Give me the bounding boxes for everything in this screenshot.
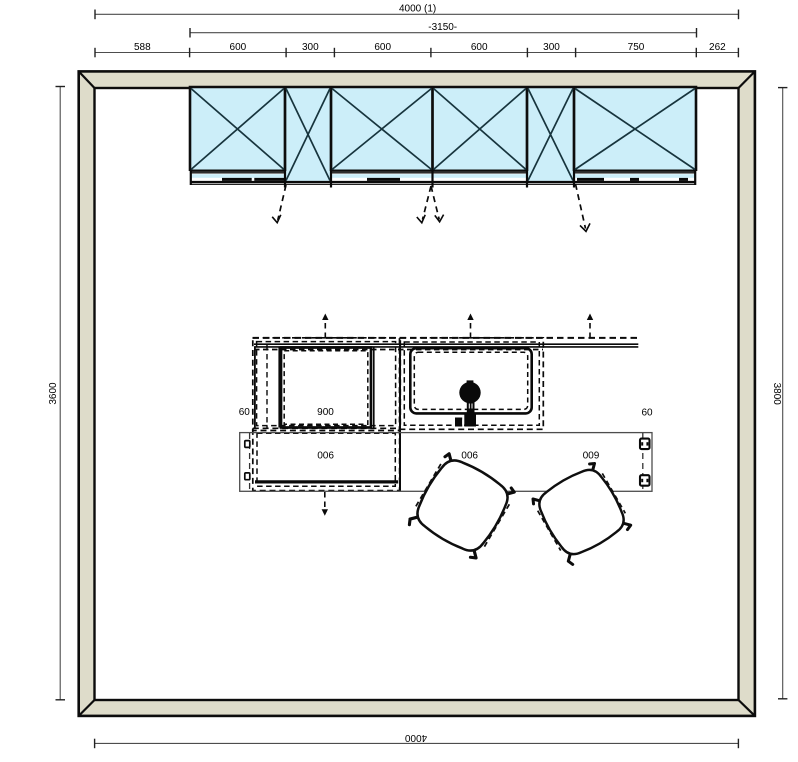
svg-text:262: 262 <box>709 42 726 53</box>
svg-text:600: 600 <box>471 42 488 53</box>
svg-text:300: 300 <box>543 42 560 53</box>
svg-text:60: 60 <box>641 408 653 419</box>
svg-text:3600: 3600 <box>48 382 59 405</box>
svg-text:900: 900 <box>317 407 334 418</box>
svg-text:4000 (1): 4000 (1) <box>399 3 436 14</box>
svg-text:900: 900 <box>461 448 478 459</box>
svg-text:3800: 3800 <box>771 383 782 406</box>
svg-text:4000: 4000 <box>404 732 427 743</box>
svg-text:588: 588 <box>134 42 151 53</box>
svg-text:600: 600 <box>230 42 247 53</box>
svg-text:60: 60 <box>239 407 251 418</box>
svg-text:-3150-: -3150- <box>428 22 457 33</box>
svg-text:900: 900 <box>317 449 334 460</box>
svg-text:600: 600 <box>582 448 599 459</box>
svg-text:750: 750 <box>628 42 645 53</box>
svg-text:300: 300 <box>302 42 319 53</box>
svg-text:600: 600 <box>374 42 391 53</box>
